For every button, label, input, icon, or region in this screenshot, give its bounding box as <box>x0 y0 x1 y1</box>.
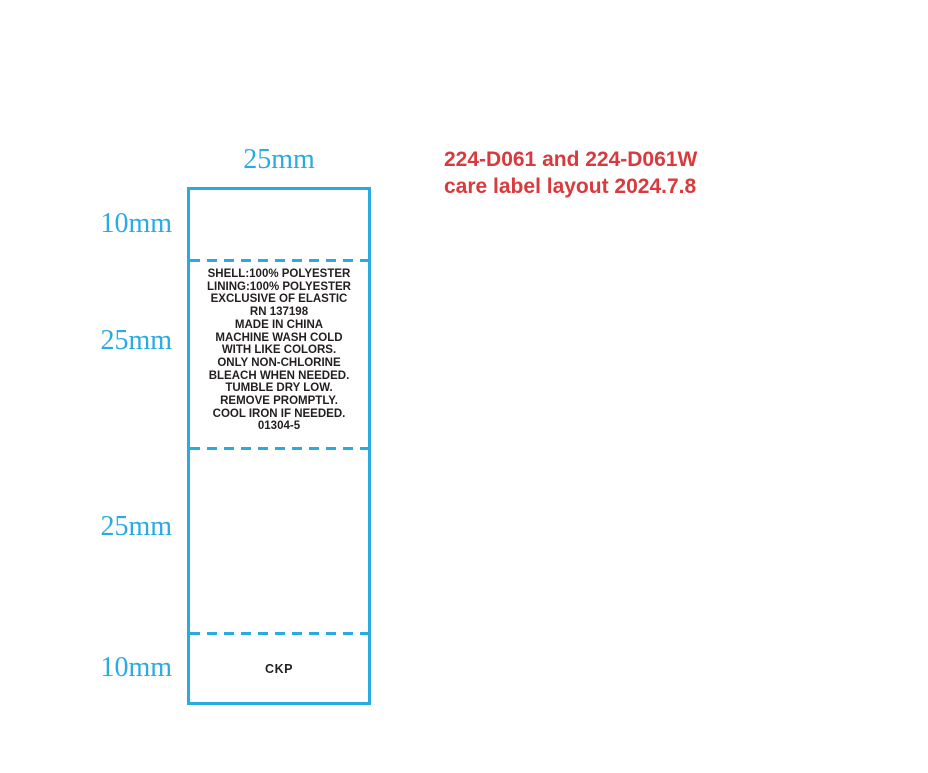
footer-code: CKP <box>265 662 293 676</box>
dimension-label-top-width: 25mm <box>187 143 371 177</box>
label-section-top-fold <box>190 190 368 259</box>
care-text-line: REMOVE PROMPTLY. <box>190 395 368 408</box>
care-text-line: ONLY NON-CHLORINE <box>190 357 368 370</box>
care-label-layout-diagram: 25mm 10mm 25mm 25mm 10mm 224-D061 and 22… <box>0 0 928 773</box>
care-text-line: MADE IN CHINA <box>190 319 368 332</box>
dimension-label-section-2: 25mm <box>100 324 172 358</box>
diagram-title-line-2: care label layout 2024.7.8 <box>444 173 697 200</box>
care-text-line: 01304-5 <box>190 420 368 433</box>
care-text-line: WITH LIKE COLORS. <box>190 344 368 357</box>
care-text-line: COOL IRON IF NEEDED. <box>190 408 368 421</box>
care-text-line: SHELL:100% POLYESTER <box>190 268 368 281</box>
care-text-line: RN 137198 <box>190 306 368 319</box>
care-text-line: MACHINE WASH COLD <box>190 332 368 345</box>
care-text-line: BLEACH WHEN NEEDED. <box>190 370 368 383</box>
diagram-title: 224-D061 and 224-D061W care label layout… <box>444 146 697 200</box>
care-text-line: LINING:100% POLYESTER <box>190 281 368 294</box>
label-section-blank <box>190 450 368 632</box>
diagram-title-line-1: 224-D061 and 224-D061W <box>444 146 697 173</box>
label-section-footer: CKP <box>190 635 368 702</box>
dimension-label-section-1: 10mm <box>100 207 172 241</box>
care-text-line: TUMBLE DRY LOW. <box>190 382 368 395</box>
care-text-line: EXCLUSIVE OF ELASTIC <box>190 293 368 306</box>
label-section-care-text: SHELL:100% POLYESTER LINING:100% POLYEST… <box>190 262 368 447</box>
dimension-label-section-3: 25mm <box>100 510 172 544</box>
dimension-label-section-4: 10mm <box>100 651 172 685</box>
care-label-box: SHELL:100% POLYESTER LINING:100% POLYEST… <box>187 187 371 705</box>
